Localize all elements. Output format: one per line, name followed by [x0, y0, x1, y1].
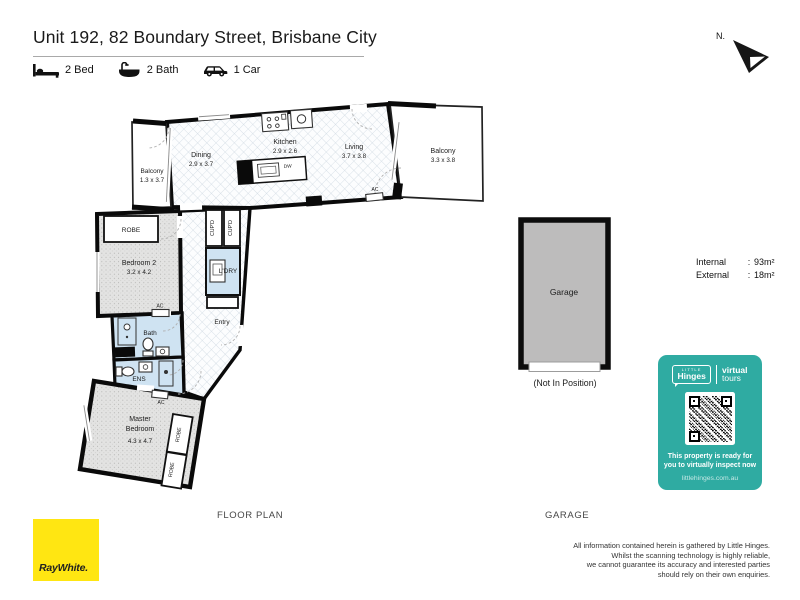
raywhite-wordmark: RayWhite.	[39, 562, 88, 574]
qr-code	[685, 392, 735, 445]
bath-label: Bath	[143, 330, 157, 337]
ens-label: ENS	[132, 376, 146, 383]
master-dims: 4.3 x 4.7	[128, 438, 153, 445]
balcony-left-name: Balcony	[140, 168, 164, 175]
disclaimer-line: we cannot guarantee its accuracy and int…	[450, 560, 770, 570]
logo-divider	[716, 365, 717, 384]
tour-message-line1: This property is ready for	[664, 452, 756, 461]
disclaimer-line: Whilst the scanning technology is highly…	[450, 551, 770, 561]
tour-website: littlehinges.com.au	[682, 475, 738, 482]
stove-icon	[262, 112, 289, 132]
internal-area-value: 93m²	[754, 257, 790, 270]
disclaimer-line: All information contained herein is gath…	[450, 541, 770, 551]
robe-bedroom2: ROBE	[104, 216, 158, 242]
qr-finder	[689, 396, 700, 407]
tour-message-line2: you to virtually inspect now	[664, 461, 756, 470]
robe-label: ROBE	[122, 227, 141, 234]
balcony-left-dims: 1.3 x 3.7	[140, 177, 165, 184]
garage-block: Garage (Not In Position)	[521, 220, 608, 388]
little-hinges-logo: LITTLE Hinges virtual tours	[672, 365, 747, 384]
cupboard-label: CUP'D	[228, 220, 234, 236]
balcony-right-name: Balcony	[431, 148, 456, 155]
internal-area-label: Internal	[696, 257, 744, 270]
external-area-label: External	[696, 270, 744, 283]
floor-plan-caption: FLOOR PLAN	[217, 510, 283, 521]
garage-caption: GARAGE	[545, 510, 589, 521]
logo-words: virtual tours	[722, 366, 748, 384]
ac-label: AC	[372, 187, 379, 193]
qr-finder	[689, 431, 700, 442]
disclaimer-text: All information contained herein is gath…	[450, 541, 770, 579]
tour-message: This property is ready for you to virtua…	[664, 452, 756, 470]
sink-icon	[290, 109, 312, 128]
dishwasher-label: DW	[284, 163, 293, 170]
dining-dims: 2.9 x 3.7	[189, 161, 214, 168]
floor-plan-drawing: ROBE CUP'D CUP'D L'DRY ROBE ROBE	[0, 0, 800, 600]
master-name-2: Bedroom	[126, 426, 155, 433]
ac-label: AC	[158, 400, 165, 406]
separator: :	[744, 270, 754, 283]
brand-hinges: Hinges	[677, 372, 705, 381]
separator: :	[744, 257, 754, 270]
kitchen-dims: 2.9 x 2.6	[273, 148, 298, 155]
dining-name: Dining	[191, 152, 211, 159]
master-name-1: Master	[129, 416, 151, 423]
laundry-label: L'DRY	[219, 268, 238, 275]
area-summary: Internal : 93m² External : 18m²	[696, 257, 790, 283]
kitchen-name: Kitchen	[273, 139, 296, 146]
disclaimer-line: should rely on their own enquiries.	[450, 570, 770, 580]
living-dims: 3.7 x 3.8	[342, 153, 367, 160]
north-arrow-icon	[733, 40, 769, 73]
cupboard-label: CUP'D	[210, 220, 216, 236]
balcony-right-dims: 3.3 x 3.8	[431, 157, 456, 164]
laundry: L'DRY	[206, 248, 240, 308]
kitchen-island: DW	[237, 157, 306, 185]
qr-finder	[721, 396, 732, 407]
external-area-value: 18m²	[754, 270, 790, 283]
ac-label: AC	[157, 304, 164, 310]
virtual-tour-card: LITTLE Hinges virtual tours This propert…	[658, 355, 762, 490]
raywhite-logo: RayWhite.	[33, 519, 99, 581]
floorplan-sheet: Unit 192, 82 Boundary Street, Brisbane C…	[0, 0, 800, 600]
entry-label: Entry	[214, 319, 230, 326]
garage-label: Garage	[550, 287, 579, 297]
bedroom2-name: Bedroom 2	[122, 260, 156, 267]
tours-word: tours	[722, 374, 748, 383]
garage-note: (Not In Position)	[533, 378, 596, 388]
speech-bubble-icon: LITTLE Hinges	[672, 365, 710, 384]
bedroom2-dims: 3.2 x 4.2	[127, 269, 152, 276]
living-name: Living	[345, 144, 363, 151]
